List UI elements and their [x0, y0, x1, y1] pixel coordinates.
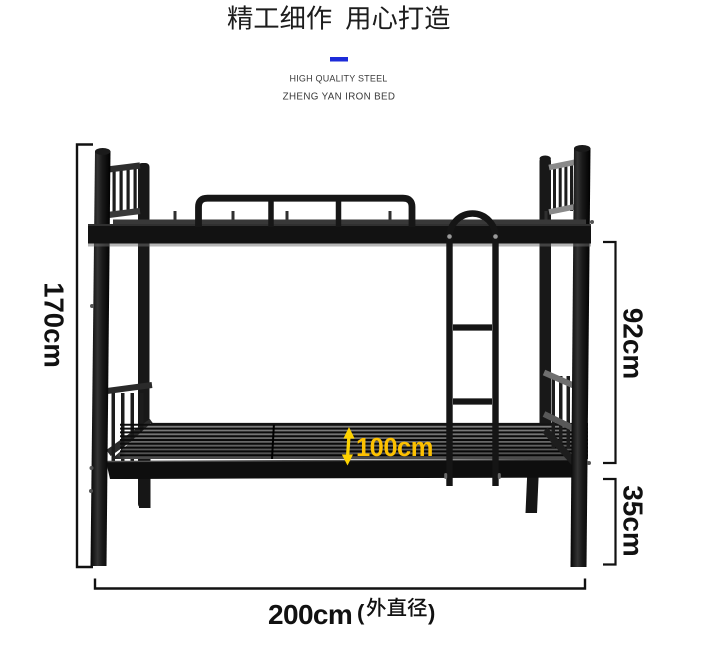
svg-text:ZHENG YAN IRON BED: ZHENG YAN IRON BED — [283, 92, 396, 103]
svg-text:200cm: 200cm — [268, 599, 352, 630]
svg-text:HIGH QUALITY STEEL: HIGH QUALITY STEEL — [290, 74, 388, 84]
svg-text:100cm: 100cm — [356, 434, 433, 462]
svg-text:(: ( — [357, 600, 365, 625]
svg-text:170cm: 170cm — [39, 282, 70, 368]
svg-text:92cm: 92cm — [618, 308, 649, 380]
svg-text:): ) — [428, 600, 435, 625]
svg-text:35cm: 35cm — [618, 485, 649, 557]
